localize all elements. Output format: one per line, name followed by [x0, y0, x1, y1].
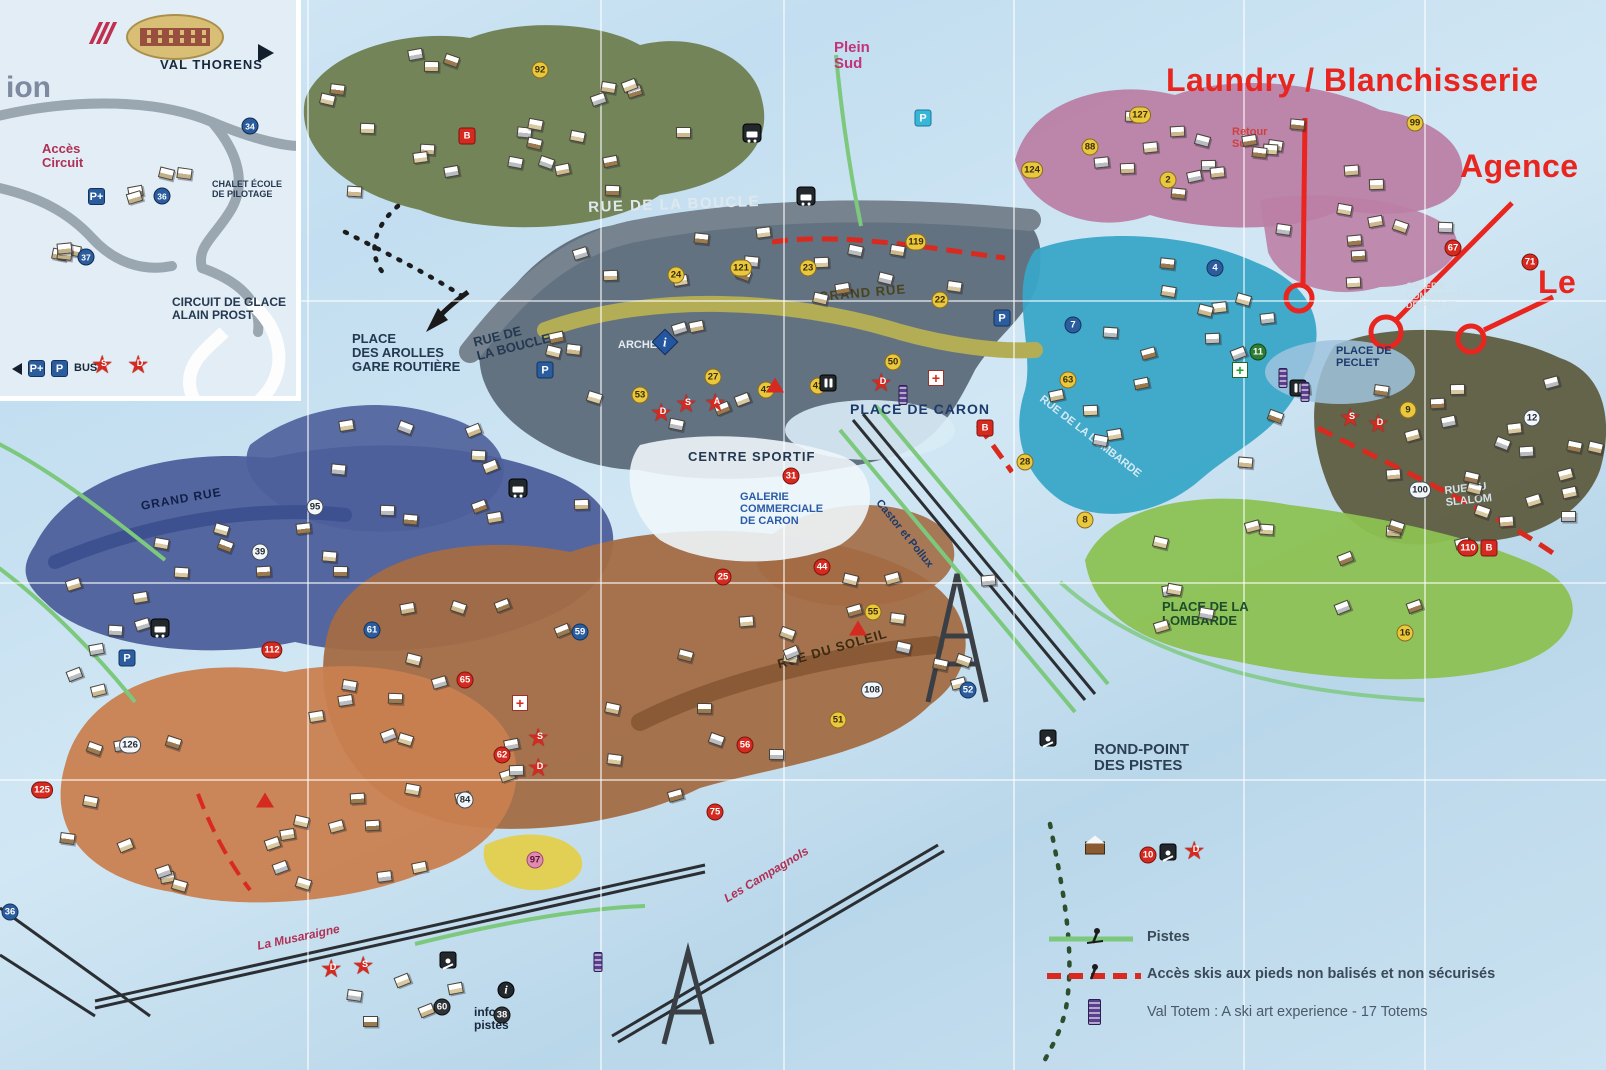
- building: [447, 981, 464, 995]
- building: [1166, 582, 1183, 596]
- building-number-marker: 38: [494, 1007, 511, 1024]
- building-number-marker: 2: [1160, 172, 1177, 189]
- ski-school-star: ★D: [1367, 415, 1393, 441]
- parking-icon: P: [994, 310, 1011, 327]
- building: [1120, 163, 1135, 175]
- building: [1171, 187, 1187, 199]
- legend-totem-label: Val Totem : A ski art experience - 17 To…: [1147, 1004, 1427, 1020]
- building: [1560, 511, 1575, 522]
- building: [346, 989, 362, 1002]
- inset-circuit-glace-label: CIRCUIT DE GLACE ALAIN PROST: [172, 296, 286, 322]
- building-number-marker: 108: [861, 682, 883, 699]
- building: [346, 186, 362, 198]
- building: [1103, 327, 1119, 339]
- arrow-west-icon: [12, 363, 22, 375]
- skier-icon: [1040, 730, 1057, 747]
- building-number-marker: 110: [1457, 540, 1478, 557]
- totem-icon: [899, 385, 908, 405]
- building-number-marker: 25: [715, 569, 732, 586]
- building: [1368, 179, 1383, 191]
- building: [606, 753, 622, 766]
- building: [565, 343, 581, 356]
- info-icon: i: [498, 982, 515, 999]
- building-number-marker: 8: [1077, 512, 1094, 529]
- skier-icon: [440, 952, 457, 969]
- building: [1260, 312, 1276, 325]
- building-number-marker: 99: [1407, 115, 1424, 132]
- building: [1159, 257, 1175, 270]
- bus-stop-icon: [151, 619, 170, 638]
- inset-parking-plus-icon: P+: [28, 360, 45, 377]
- building-number-marker: 11: [1250, 344, 1267, 361]
- building: [946, 280, 962, 293]
- inset-building: [176, 167, 192, 180]
- building: [412, 151, 428, 164]
- bus-stop-icon: [743, 124, 762, 143]
- legend: Pistes Accès skis aux pieds non balisés …: [1042, 925, 1512, 1038]
- building: [1430, 398, 1446, 410]
- inset-number-marker: 37: [78, 249, 95, 266]
- building: [847, 243, 864, 257]
- val-thorens-logo: [126, 14, 224, 60]
- building: [424, 61, 439, 72]
- building: [1450, 384, 1465, 395]
- building: [603, 269, 618, 280]
- building-number-marker: 100: [1409, 482, 1431, 499]
- ski-school-star: ★D: [527, 759, 553, 785]
- building-number-marker: 24: [668, 267, 685, 284]
- building: [60, 832, 76, 845]
- building: [604, 185, 619, 197]
- building-number-marker: 59: [572, 624, 589, 641]
- building-number-marker: 16: [1397, 625, 1414, 642]
- building: [1336, 203, 1353, 216]
- red-triangle-marker: [256, 793, 274, 808]
- building: [814, 257, 829, 269]
- building: [1346, 234, 1362, 246]
- building-number-marker: 51: [830, 712, 847, 729]
- parking-icon: P: [537, 362, 554, 379]
- legend-row-pistes: Pistes: [1042, 925, 1512, 949]
- inset-acces-circuit-label: Accès Circuit: [42, 142, 83, 170]
- building-number-marker: 97: [527, 852, 544, 869]
- building: [1241, 134, 1258, 147]
- building-number-marker: 62: [494, 747, 511, 764]
- building: [174, 567, 190, 579]
- inset-transport-row: P+ P BUS: [12, 360, 97, 377]
- building: [688, 319, 705, 333]
- building-number-marker: B: [1481, 540, 1498, 557]
- parking-icon: P: [915, 110, 932, 127]
- building: [769, 748, 784, 759]
- building-number-marker: 22: [932, 292, 949, 309]
- parking-icon: P: [119, 650, 136, 667]
- building: [1519, 445, 1535, 457]
- building-number-marker: 95: [307, 499, 324, 516]
- building: [1343, 164, 1359, 176]
- ski-school-star: ★D: [650, 404, 676, 430]
- inset-ski-school-star: ★D: [127, 356, 153, 382]
- annotation-le: Le: [1538, 264, 1576, 301]
- building: [980, 575, 996, 587]
- building-number-marker: 60: [434, 999, 451, 1016]
- ski-school-star: ★D: [320, 960, 346, 986]
- building: [330, 463, 346, 475]
- building: [1205, 332, 1220, 344]
- building: [1083, 405, 1098, 417]
- inset-building: [56, 243, 72, 255]
- building: [1350, 250, 1366, 262]
- building-number-marker: 112: [261, 642, 282, 659]
- building: [1142, 142, 1158, 155]
- building: [329, 84, 345, 97]
- chalet-icon: [1085, 842, 1105, 855]
- building: [1499, 516, 1515, 528]
- inset-parking-icon: P: [51, 360, 68, 377]
- annotation-agence: Agence: [1460, 148, 1579, 185]
- building: [376, 870, 392, 883]
- building: [1437, 222, 1452, 234]
- red-triangle-marker: [766, 378, 784, 393]
- resort-map: RUE DE LA BOUCLEGRAND RUERUE DE LA BOUCL…: [0, 0, 1606, 1070]
- building-number-marker: 53: [632, 387, 649, 404]
- building: [1276, 223, 1292, 236]
- pharmacy-icon: +: [1232, 362, 1248, 378]
- building: [349, 793, 365, 805]
- totem-icon: [1279, 368, 1288, 388]
- building-number-marker: 119: [905, 234, 926, 251]
- building: [1374, 384, 1390, 397]
- building: [108, 624, 124, 636]
- building-number-marker: 9: [1400, 402, 1417, 419]
- building-number-marker: 61: [364, 622, 381, 639]
- legend-acces-label: Accès skis aux pieds non balisés et non …: [1147, 966, 1495, 982]
- building: [1252, 146, 1268, 159]
- building-number-marker: 36: [2, 904, 19, 921]
- building: [132, 590, 149, 603]
- building: [1290, 119, 1306, 131]
- red-triangle-marker: [849, 621, 867, 636]
- building: [675, 127, 690, 138]
- building: [574, 498, 589, 509]
- building: [889, 612, 905, 625]
- inset-partial-word: ion: [6, 72, 51, 104]
- inset-parking-plus-icon: P+: [88, 188, 105, 205]
- building-number-marker: 124: [1021, 162, 1043, 179]
- building-number-marker: 127: [1129, 107, 1151, 124]
- building-number-marker: B: [977, 420, 994, 437]
- building-number-marker: 27: [705, 369, 722, 386]
- building: [333, 566, 348, 577]
- building: [402, 514, 418, 526]
- legend-pistes-label: Pistes: [1147, 929, 1190, 945]
- building: [1160, 285, 1177, 298]
- building-number-marker: 65: [457, 672, 474, 689]
- building: [387, 693, 402, 705]
- totem-icon: [1301, 382, 1310, 402]
- building-number-marker: 50: [885, 354, 902, 371]
- building: [1506, 422, 1522, 435]
- ski-school-star: ★S: [527, 729, 553, 755]
- building: [834, 282, 851, 295]
- building: [1259, 524, 1275, 536]
- first-aid-icon: +: [512, 695, 528, 711]
- building-number-marker: 7: [1065, 317, 1082, 334]
- building-number-marker: 4: [1207, 260, 1224, 277]
- building: [322, 550, 338, 562]
- building-number-marker: 126: [119, 737, 141, 754]
- building-number-marker: 121: [730, 260, 752, 277]
- building: [739, 615, 755, 627]
- building-number-marker: 23: [800, 260, 817, 277]
- inset-access-map: VAL THORENS ion Accès Circuit CHALET ÉCO…: [0, 0, 301, 401]
- building-number-marker: 71: [1522, 254, 1539, 271]
- skier-icon: [1160, 844, 1177, 861]
- building-number-marker: 125: [31, 782, 53, 799]
- toilets-icon: [820, 375, 837, 392]
- building: [280, 828, 297, 841]
- bus-stop-icon: [797, 187, 816, 206]
- building: [756, 226, 772, 239]
- building: [509, 765, 524, 777]
- building: [360, 123, 375, 135]
- building-number-marker: 12: [1524, 410, 1541, 427]
- acces-dashed-icon: [1042, 962, 1147, 986]
- building: [1345, 277, 1361, 289]
- building-number-marker: 84: [457, 792, 474, 809]
- annotation-laundry: Laundry / Blanchisserie: [1166, 62, 1539, 99]
- building: [256, 566, 272, 578]
- building-number-marker: 39: [252, 544, 269, 561]
- building: [1170, 126, 1186, 138]
- first-aid-icon: +: [928, 370, 944, 386]
- legend-row-totem: Val Totem : A ski art experience - 17 To…: [1042, 999, 1512, 1025]
- inset-number-marker: 36: [154, 188, 171, 205]
- ski-school-star: ★S: [1339, 409, 1365, 435]
- building-number-marker: 10: [1140, 847, 1157, 864]
- bus-stop-icon: [509, 479, 528, 498]
- ski-school-star: ★S: [675, 395, 701, 421]
- inset-chalet-ecole-label: CHALET ÉCOLE DE PILOTAGE: [212, 180, 282, 199]
- ski-school-star: ★D: [870, 374, 896, 400]
- building: [380, 505, 395, 516]
- building: [1238, 456, 1254, 468]
- building-number-marker: 52: [960, 682, 977, 699]
- inset-val-thorens-label: VAL THORENS: [160, 58, 263, 72]
- building-number-marker: 92: [532, 62, 549, 79]
- building: [1210, 166, 1226, 178]
- building: [889, 244, 906, 257]
- building-number-marker: 63: [1060, 372, 1077, 389]
- building-number-marker: B: [459, 128, 476, 145]
- building: [471, 450, 487, 462]
- building: [88, 642, 105, 655]
- totem-icon: [594, 952, 603, 972]
- building: [363, 1016, 378, 1027]
- building-number-marker: 67: [1445, 240, 1462, 257]
- building: [1386, 468, 1402, 480]
- building: [308, 709, 325, 722]
- ski-school-star: ★A: [704, 394, 730, 420]
- piste-line-icon: [1042, 925, 1147, 949]
- building-number-marker: 28: [1017, 454, 1034, 471]
- building: [694, 232, 710, 245]
- building-number-marker: 55: [865, 604, 882, 621]
- inset-ski-school-star: ★S: [91, 356, 117, 382]
- inset-number-marker: 34: [242, 118, 259, 135]
- building: [486, 511, 503, 524]
- building-number-marker: 44: [814, 559, 831, 576]
- building-number-marker: 75: [707, 804, 724, 821]
- ski-school-star: ★S: [352, 957, 378, 983]
- val-totem-icon: [1042, 999, 1147, 1025]
- building: [697, 703, 712, 714]
- legend-row-acces: Accès skis aux pieds non balisés et non …: [1042, 962, 1512, 986]
- ski-school-star: ★D: [1183, 842, 1209, 868]
- building-number-marker: 56: [737, 737, 754, 754]
- building-number-marker: 31: [783, 468, 800, 485]
- building: [507, 155, 524, 169]
- building: [1093, 156, 1109, 169]
- building: [365, 820, 381, 832]
- building-number-marker: 88: [1082, 139, 1099, 156]
